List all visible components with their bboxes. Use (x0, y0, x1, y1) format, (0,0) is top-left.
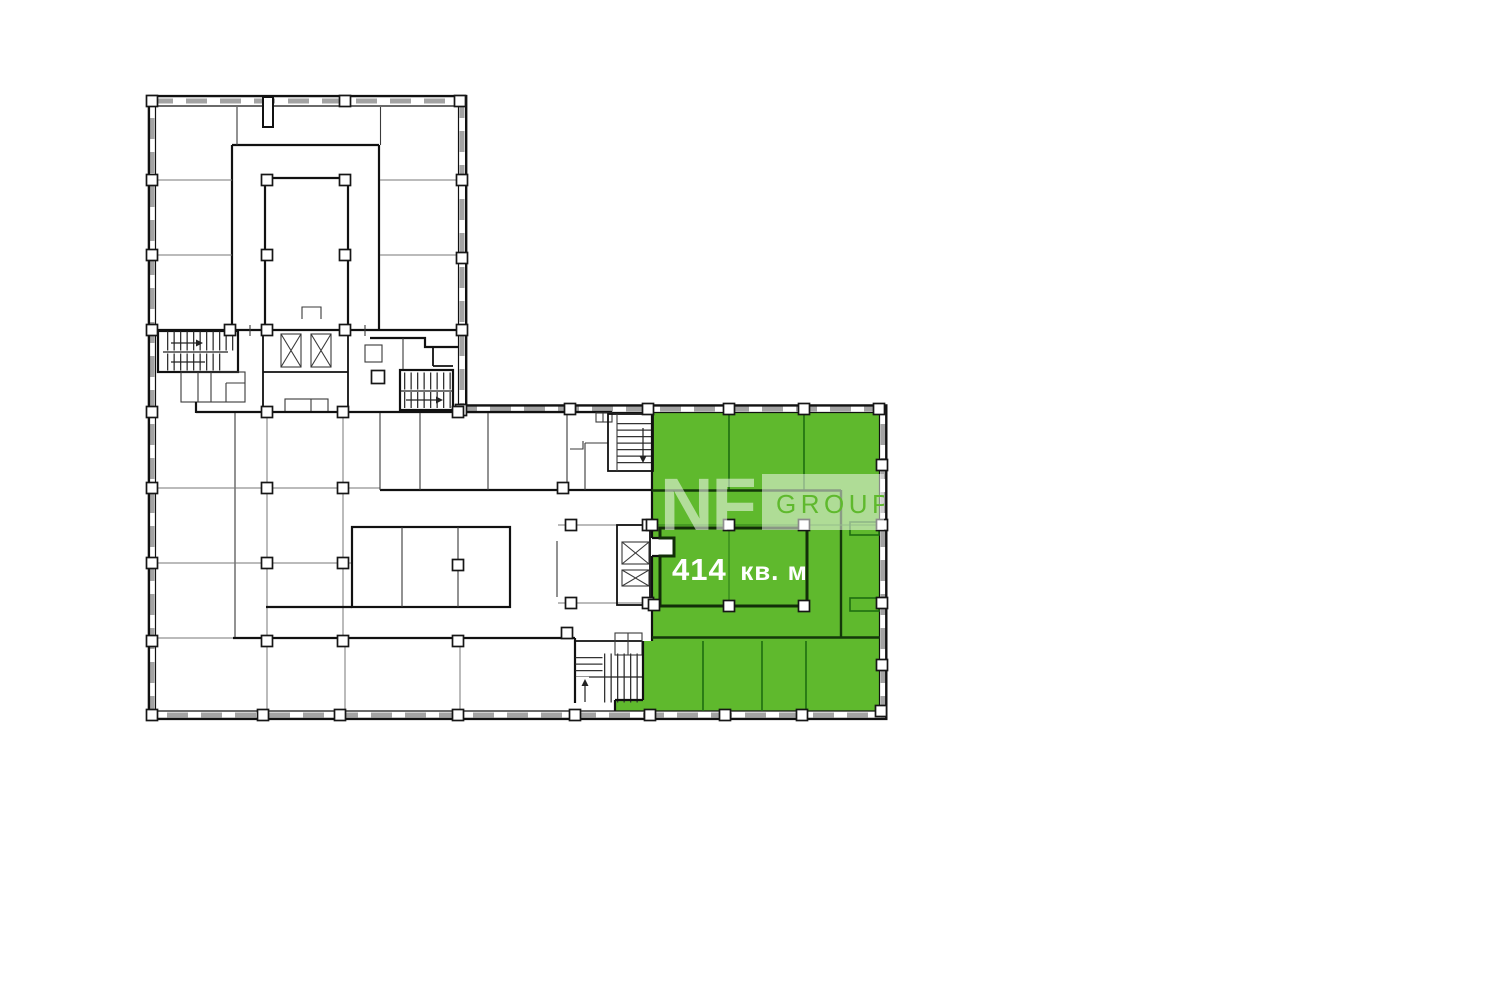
elevator-core-upper-block (263, 330, 348, 412)
upper-block-walls (155, 97, 458, 336)
area-value: 414 (672, 552, 727, 587)
staircase-mid-upper (608, 414, 653, 471)
staircase-northeast (365, 338, 458, 410)
watermark-nf-logo: NF (660, 463, 755, 546)
floor-plan-page: NF GROUP 414 кв. м (0, 0, 1512, 1008)
lower-band-rooms (156, 413, 653, 711)
watermark-group-label: GROUP (776, 489, 894, 519)
area-label: 414 кв. м (672, 552, 808, 587)
elevator-core-lower (617, 525, 650, 605)
floor-plan-svg: NF GROUP 414 кв. м (0, 0, 1512, 1008)
wall-pier (263, 97, 273, 127)
area-unit: кв. м (740, 556, 808, 586)
staircase-south (575, 633, 642, 703)
staircase-northwest (158, 331, 245, 413)
